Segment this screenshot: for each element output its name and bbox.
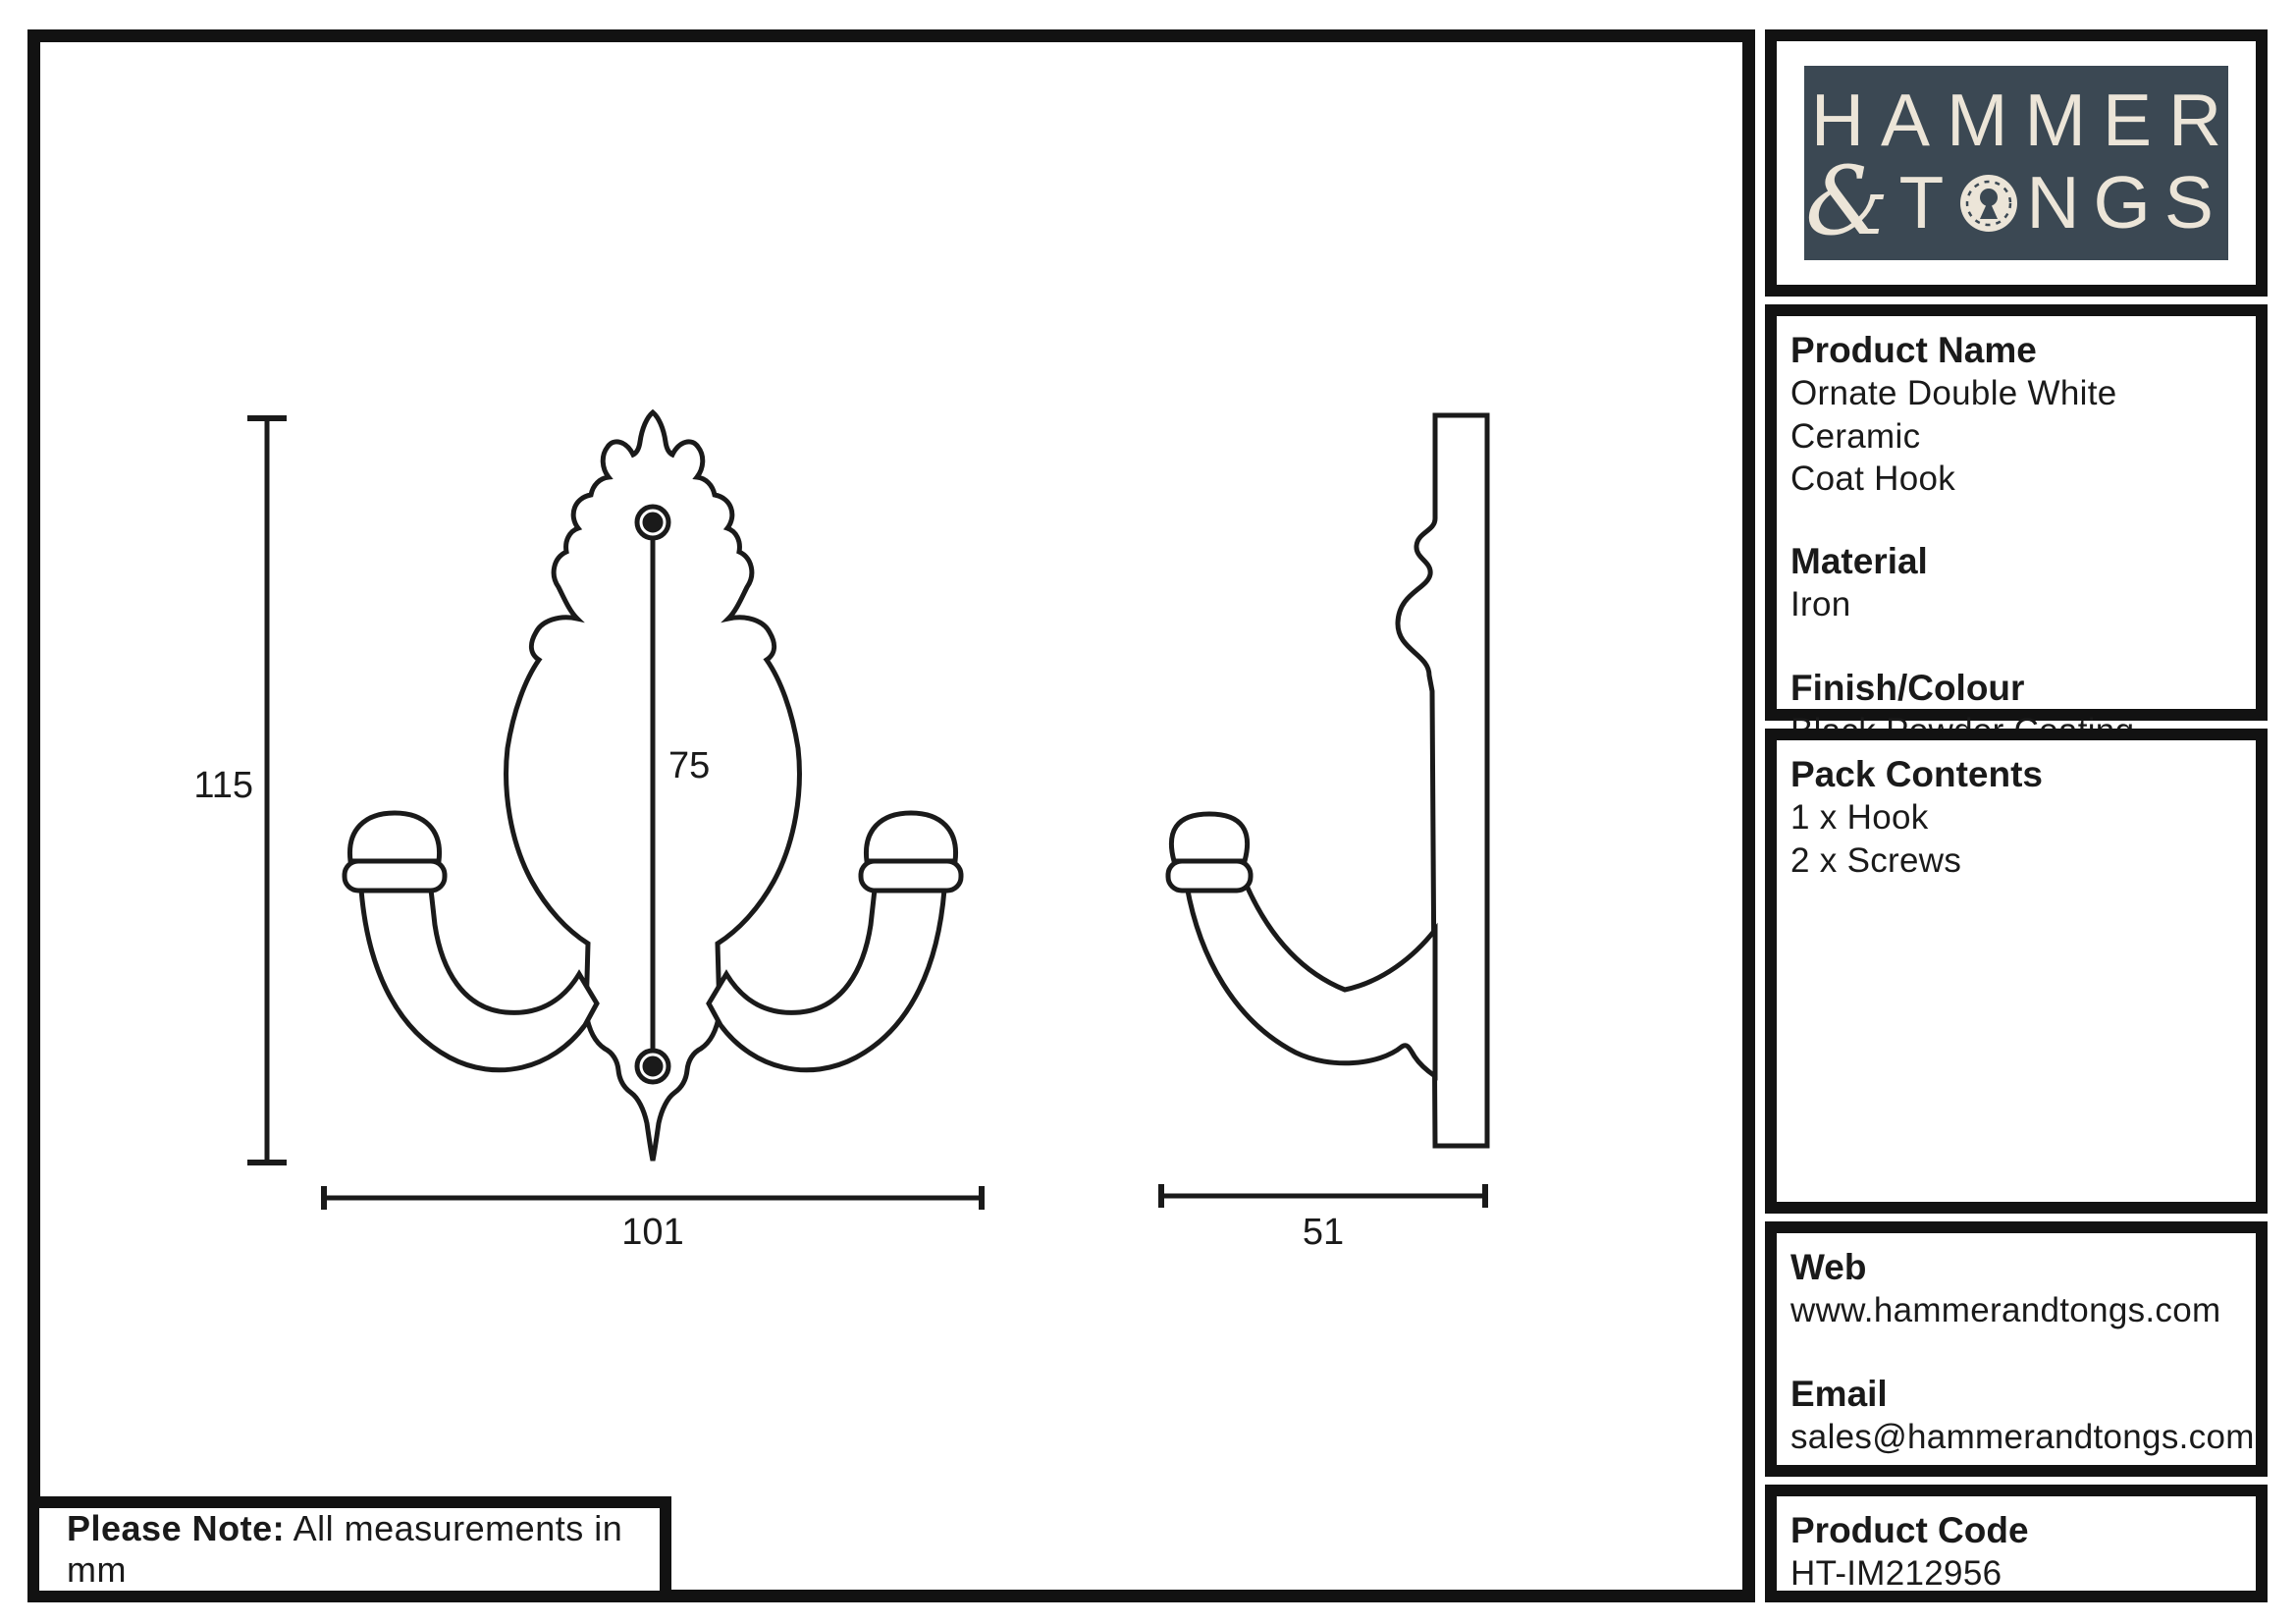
screw-hole-bottom-center bbox=[645, 1058, 661, 1074]
hole-spacing-dimension-label: 75 bbox=[668, 745, 710, 786]
contact-box: Web www.hammerandtongs.com Email sales@h… bbox=[1765, 1221, 2268, 1477]
spec-sheet-page: 115 75 101 51 Please Note: All measureme… bbox=[0, 0, 2296, 1624]
material-value: Iron bbox=[1790, 583, 2242, 625]
keyhole-icon bbox=[1959, 174, 2018, 233]
logo-word-tongs-t: T bbox=[1899, 166, 1958, 240]
side-knob bbox=[1171, 814, 1247, 861]
height-dimension-label: 115 bbox=[193, 765, 253, 806]
email-address: sales@hammerandtongs.com bbox=[1790, 1416, 2242, 1458]
front-left-knob-collar bbox=[345, 861, 445, 891]
pack-contents-items: 1 x Hook 2 x Screws bbox=[1790, 796, 2242, 882]
hammer-and-tongs-logo: HAMMER & T NGS bbox=[1804, 66, 2228, 260]
product-name-value: Ornate Double White Ceramic Coat Hook bbox=[1790, 372, 2242, 500]
product-code-box: Product Code HT-IM212956 bbox=[1765, 1485, 2268, 1602]
pack-contents-header: Pack Contents bbox=[1790, 752, 2242, 796]
logo-word-tongs-ngs: NGS bbox=[2026, 166, 2227, 240]
measurements-note-box: Please Note: All measurements in mm bbox=[27, 1496, 671, 1602]
note-label: Please Note: bbox=[67, 1508, 285, 1548]
product-info-box: Product Name Ornate Double White Ceramic… bbox=[1765, 304, 2268, 721]
web-url: www.hammerandtongs.com bbox=[1790, 1289, 2242, 1331]
finish-colour-header: Finish/Colour bbox=[1790, 666, 2242, 710]
side-hook-arm bbox=[1187, 886, 1435, 1076]
side-view-drawing bbox=[1161, 415, 1487, 1208]
web-header: Web bbox=[1790, 1245, 2242, 1289]
product-code-value: HT-IM212956 bbox=[1790, 1552, 2242, 1595]
width-dimension-label: 101 bbox=[621, 1212, 683, 1253]
logo-box: HAMMER & T NGS bbox=[1765, 29, 2268, 297]
front-right-knob bbox=[866, 813, 955, 861]
front-view-drawing bbox=[247, 412, 982, 1210]
pack-contents-box: Pack Contents 1 x Hook 2 x Screws bbox=[1765, 729, 2268, 1214]
front-left-knob bbox=[349, 813, 439, 861]
material-header: Material bbox=[1790, 539, 2242, 583]
email-header: Email bbox=[1790, 1372, 2242, 1416]
front-right-knob-collar bbox=[861, 861, 961, 891]
product-code-header: Product Code bbox=[1790, 1508, 2242, 1552]
side-knob-collar bbox=[1168, 861, 1251, 891]
screw-hole-top-center bbox=[645, 514, 661, 530]
product-name-header: Product Name bbox=[1790, 328, 2242, 372]
logo-ampersand: & bbox=[1805, 154, 1889, 248]
depth-dimension-label: 51 bbox=[1303, 1212, 1344, 1253]
